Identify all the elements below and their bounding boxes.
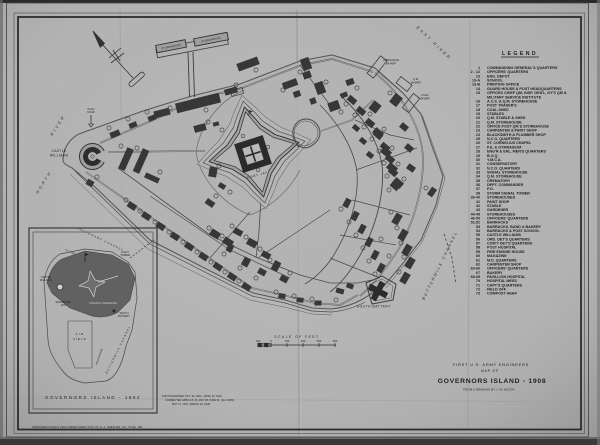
svg-text:WILLIAMS: WILLIAMS — [50, 154, 69, 158]
svg-text:TOWER: TOWER — [120, 253, 130, 257]
svg-text:MAP OF: MAP OF — [481, 369, 499, 373]
svg-text:300: 300 — [317, 339, 322, 343]
svg-text:GOVERNORS ISLAND - 1962: GOVERNORS ISLAND - 1962 — [45, 395, 141, 400]
svg-text:MAY 17, 1937, MARCH 10, 1938.: MAY 17, 1937, MARCH 10, 1938. — [172, 402, 211, 406]
svg-text:CASTLE: CASTLE — [52, 149, 67, 153]
svg-text:WHARF: WHARF — [386, 62, 397, 66]
svg-text:100: 100 — [285, 339, 290, 343]
svg-text:AIR: AIR — [75, 332, 84, 336]
svg-text:WILLIAMS: WILLIAMS — [40, 278, 53, 282]
svg-text:SOUTH BATTERY: SOUTH BATTERY — [357, 305, 392, 309]
svg-text:15: 15 — [476, 91, 480, 95]
svg-text:100: 100 — [256, 339, 261, 343]
svg-text:FROM A DRAWING BY J. M. HILTON: FROM A DRAWING BY J. M. HILTON — [463, 388, 514, 392]
svg-text:ORIGINAL SHORELINE: ORIGINAL SHORELINE — [89, 301, 117, 305]
svg-text:· 1870: · 1870 — [59, 303, 67, 307]
svg-text:73: 73 — [476, 292, 480, 296]
svg-text:SCALE OF FEET: SCALE OF FEET — [274, 335, 319, 339]
svg-text:COMPOST HEAP: COMPOST HEAP — [487, 292, 517, 296]
svg-text:CORRECTED APRIL 18, 24, MAY 28: CORRECTED APRIL 18, 24, MAY 28, JUNE 21,… — [165, 398, 235, 402]
svg-text:WHARF: WHARF — [420, 97, 431, 101]
svg-text:400: 400 — [333, 339, 338, 343]
svg-text:FIELD: FIELD — [73, 337, 87, 341]
svg-text:LEGEND: LEGEND — [502, 51, 538, 57]
svg-text:STAFF: STAFF — [87, 110, 95, 114]
svg-text:FIRST U.S. ARMY ENGINEERS: FIRST U.S. ARMY ENGINEERS — [453, 362, 529, 367]
svg-text:BATTERY: BATTERY — [118, 314, 130, 318]
svg-text:WHARF: WHARF — [411, 81, 422, 85]
svg-text:PHOTOGRAPHED OCT. 10, 1902 - A: PHOTOGRAPHED OCT. 10, 1902 - APRIL 22, 1… — [162, 394, 222, 398]
svg-text:GOVERNORS ISLAND - 1908: GOVERNORS ISLAND - 1908 — [438, 378, 547, 385]
svg-text:PREPARED MARCH 1962 UNDER DIRE: PREPARED MARCH 1962 UNDER DIRECTION OF G… — [32, 425, 143, 429]
svg-text:200: 200 — [301, 339, 306, 343]
